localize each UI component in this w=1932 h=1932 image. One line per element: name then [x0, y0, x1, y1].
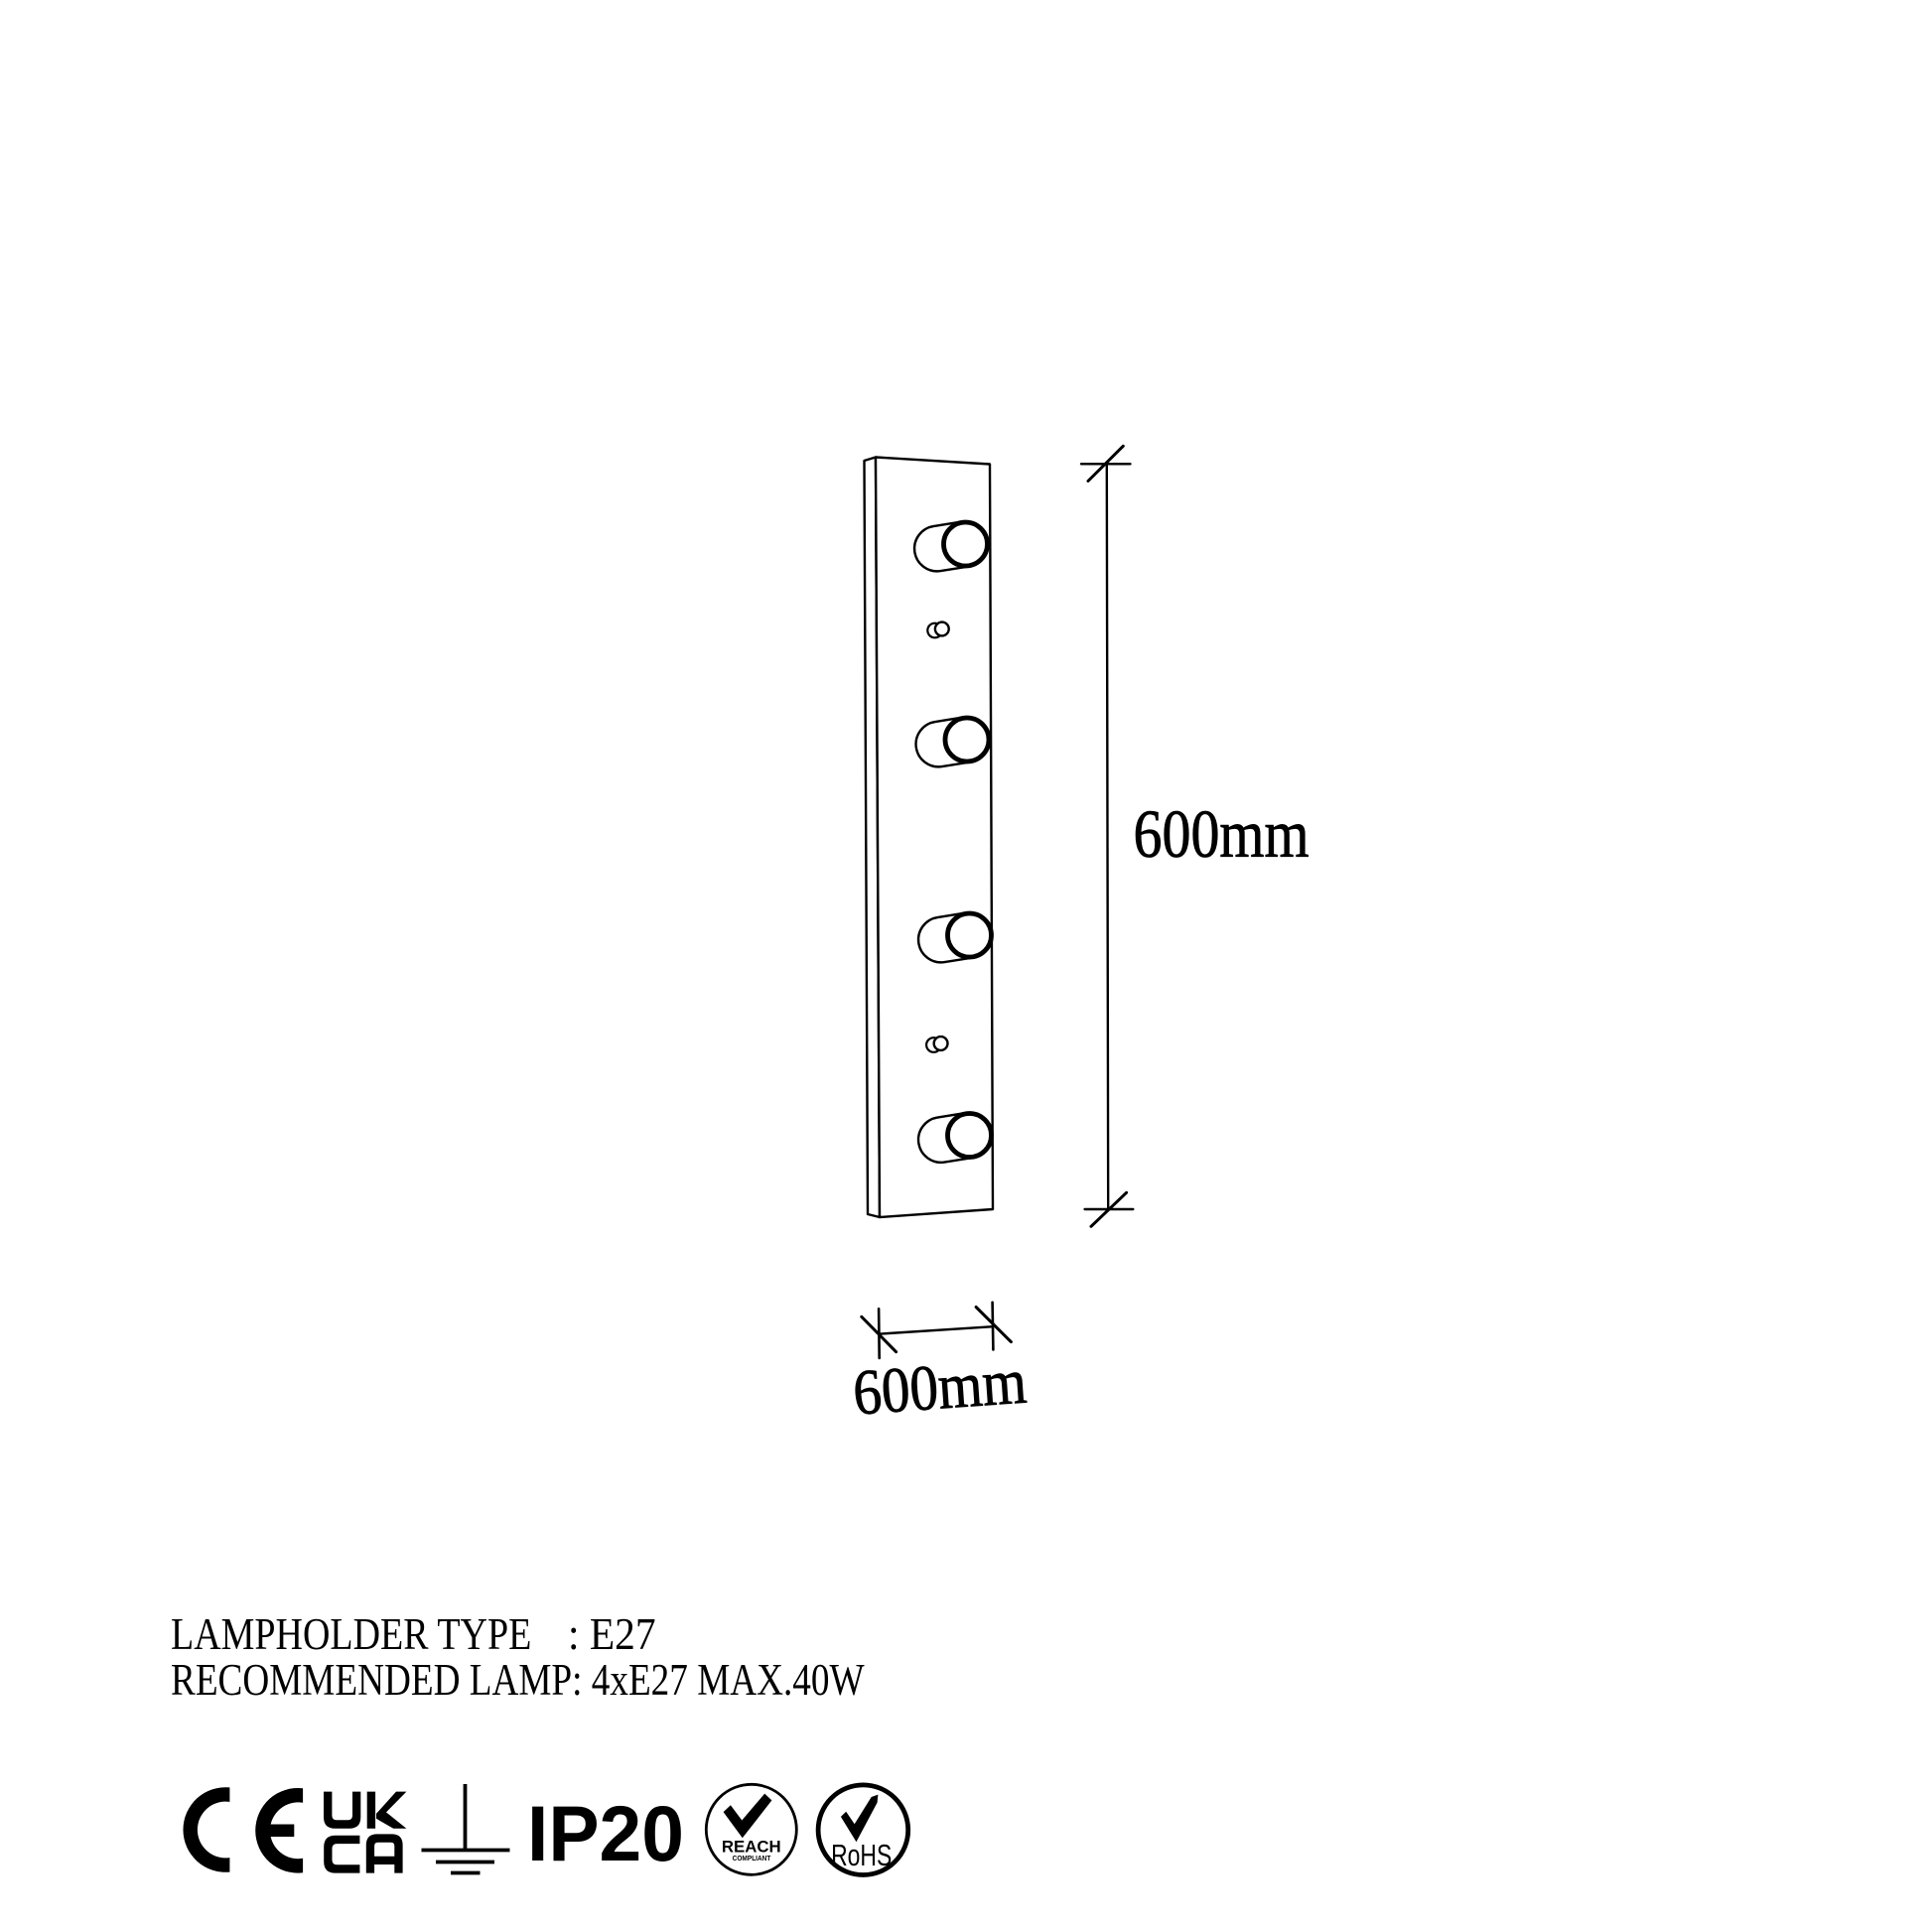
svg-text:IP20: IP20: [527, 1789, 684, 1877]
svg-text:COMPLIANT: COMPLIANT: [733, 1855, 771, 1862]
svg-text:REACH: REACH: [722, 1837, 781, 1856]
svg-text:600mm: 600mm: [1134, 795, 1310, 872]
svg-text:RECOMMENDED LAMP: 4xE27 MAX.40: RECOMMENDED LAMP: 4xE27 MAX.40W: [171, 1655, 865, 1706]
svg-text:RoHS: RoHS: [831, 1837, 892, 1871]
svg-text:LAMPHOLDER TYPE: LAMPHOLDER TYPE: [171, 1609, 531, 1660]
svg-text:: E27: : E27: [568, 1609, 656, 1659]
svg-text:600mm: 600mm: [851, 1345, 1029, 1429]
